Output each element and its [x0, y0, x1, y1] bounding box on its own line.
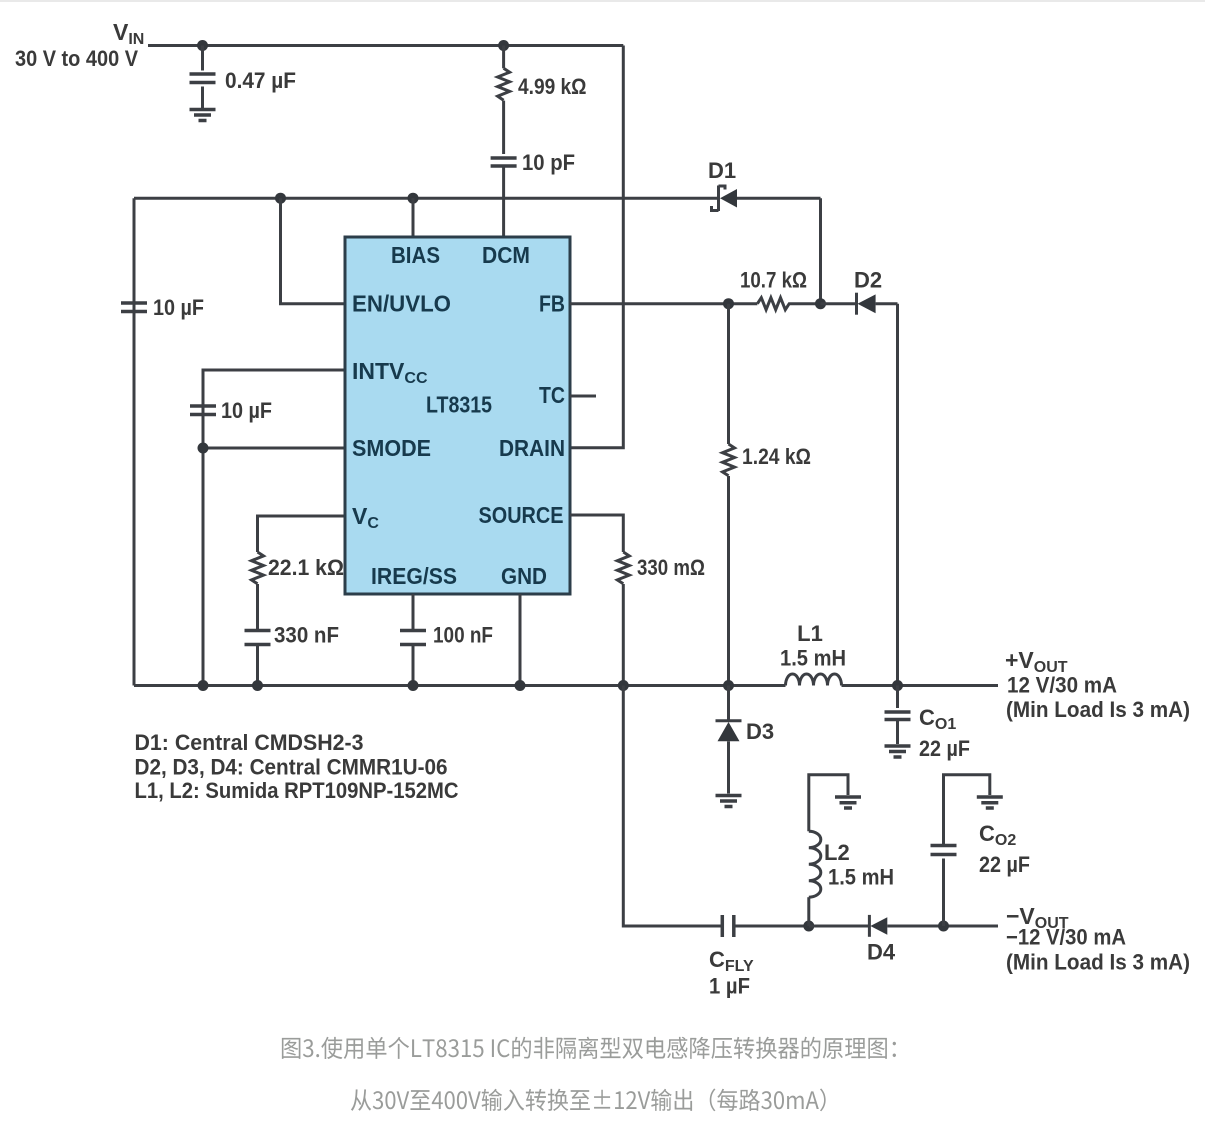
svg-text:L2: L2: [824, 840, 850, 865]
svg-text:FB: FB: [539, 291, 565, 317]
svg-text:(Min Load Is 3 mA): (Min Load Is 3 mA): [1006, 697, 1190, 722]
svg-text:22.1 kΩ: 22.1 kΩ: [268, 555, 344, 580]
svg-text:TC: TC: [539, 382, 565, 408]
svg-text:0.47 µF: 0.47 µF: [225, 68, 296, 93]
svg-text:SMODE: SMODE: [352, 435, 431, 461]
svg-text:DRAIN: DRAIN: [499, 435, 565, 461]
svg-text:D3: D3: [746, 719, 774, 744]
svg-text:D2, D3, D4: Central CMMR1U-06: D2, D3, D4: Central CMMR1U-06: [135, 755, 448, 780]
svg-text:12 V/30 mA: 12 V/30 mA: [1007, 673, 1117, 698]
svg-text:22 µF: 22 µF: [919, 736, 970, 761]
svg-text:BIAS: BIAS: [391, 242, 440, 268]
svg-text:1.5 mH: 1.5 mH: [828, 865, 894, 890]
svg-text:1.24 kΩ: 1.24 kΩ: [742, 444, 811, 469]
svg-text:10 µF: 10 µF: [221, 398, 272, 423]
svg-text:1 µF: 1 µF: [709, 974, 750, 999]
svg-text:GND: GND: [501, 563, 547, 589]
svg-text:EN/UVLO: EN/UVLO: [352, 291, 451, 317]
svg-text:10 pF: 10 pF: [522, 150, 575, 175]
svg-text:SOURCE: SOURCE: [479, 502, 564, 528]
svg-text:10.7 kΩ: 10.7 kΩ: [740, 268, 807, 293]
svg-text:4.99 kΩ: 4.99 kΩ: [518, 74, 587, 99]
svg-text:1.5 mH: 1.5 mH: [780, 646, 846, 671]
svg-text:L1, L2: Sumida RPT109NP-152MC: L1, L2: Sumida RPT109NP-152MC: [135, 778, 459, 803]
svg-text:10 µF: 10 µF: [153, 295, 204, 320]
svg-text:D1: D1: [708, 158, 736, 183]
svg-text:−12 V/30 mA: −12 V/30 mA: [1006, 925, 1126, 950]
svg-text:LT8315: LT8315: [426, 392, 492, 418]
svg-text:D1: Central CMDSH2-3: D1: Central CMDSH2-3: [135, 730, 364, 755]
svg-text:30 V to 400 V: 30 V to 400 V: [15, 46, 138, 71]
svg-text:IREG/SS: IREG/SS: [371, 563, 457, 589]
svg-text:330 mΩ: 330 mΩ: [637, 555, 705, 580]
svg-text:D4: D4: [867, 940, 896, 965]
svg-text:(Min Load Is 3 mA): (Min Load Is 3 mA): [1006, 950, 1190, 975]
svg-text:L1: L1: [797, 621, 823, 646]
svg-text:D2: D2: [854, 268, 882, 293]
svg-text:22 µF: 22 µF: [979, 852, 1030, 877]
svg-text:DCM: DCM: [482, 242, 530, 268]
svg-text:330 nF: 330 nF: [274, 623, 339, 648]
svg-text:100 nF: 100 nF: [433, 623, 493, 648]
